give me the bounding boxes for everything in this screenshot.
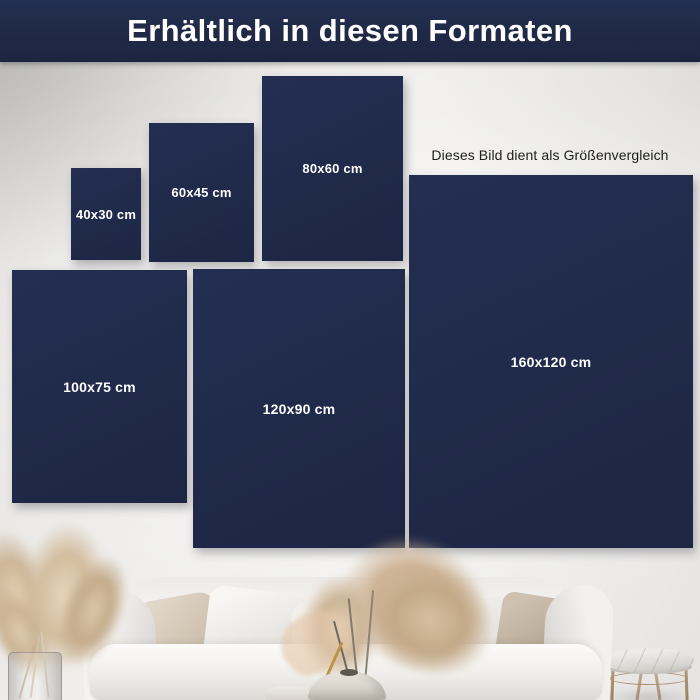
side-table-shadow: [600, 690, 696, 700]
vase-opening: [340, 669, 358, 676]
format-panel-100x75: 100x75 cm: [12, 270, 187, 503]
header-title: Erhältlich in diesen Formaten: [127, 13, 573, 49]
format-label-160x120: 160x120 cm: [511, 354, 592, 370]
format-panel-160x120: 160x120 cm: [409, 175, 693, 548]
format-label-100x75: 100x75 cm: [63, 379, 136, 395]
size-comparison-graphic: Erhältlich in diesen Formaten Dieses Bil…: [0, 0, 700, 700]
format-label-80x60: 80x60 cm: [302, 161, 362, 176]
comparison-note: Dieses Bild dient als Größenvergleich: [405, 147, 695, 163]
format-label-60x45: 60x45 cm: [171, 185, 231, 200]
side-table-marble-top: [602, 648, 694, 673]
format-panel-120x90: 120x90 cm: [193, 269, 405, 548]
format-panel-60x45: 60x45 cm: [149, 123, 254, 262]
format-label-40x30: 40x30 cm: [76, 207, 136, 222]
glass-vase: [8, 652, 62, 700]
format-label-120x90: 120x90 cm: [263, 401, 336, 417]
format-panel-80x60: 80x60 cm: [262, 76, 403, 261]
header-banner: Erhältlich in diesen Formaten: [0, 0, 700, 62]
format-panel-40x30: 40x30 cm: [71, 168, 141, 260]
ceramic-vase-small: [266, 686, 312, 700]
